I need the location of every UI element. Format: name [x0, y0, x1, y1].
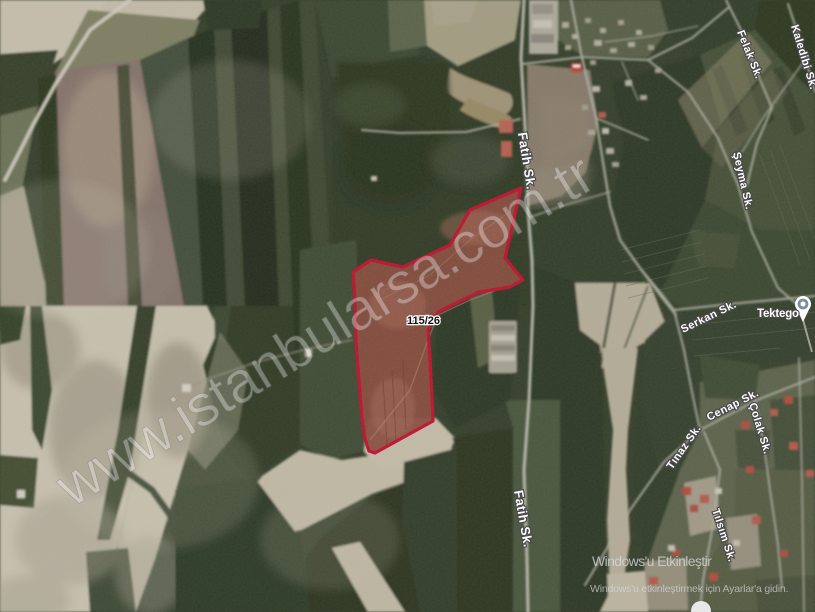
svg-text:Windows'u Etkinleştir: Windows'u Etkinleştir: [592, 553, 712, 569]
svg-text:115/26: 115/26: [407, 315, 440, 327]
svg-text:Windows'u etkinleştirmek için: Windows'u etkinleştirmek için Ayarlar'a …: [590, 583, 788, 595]
svg-text:Tektego: Tektego: [757, 308, 799, 320]
